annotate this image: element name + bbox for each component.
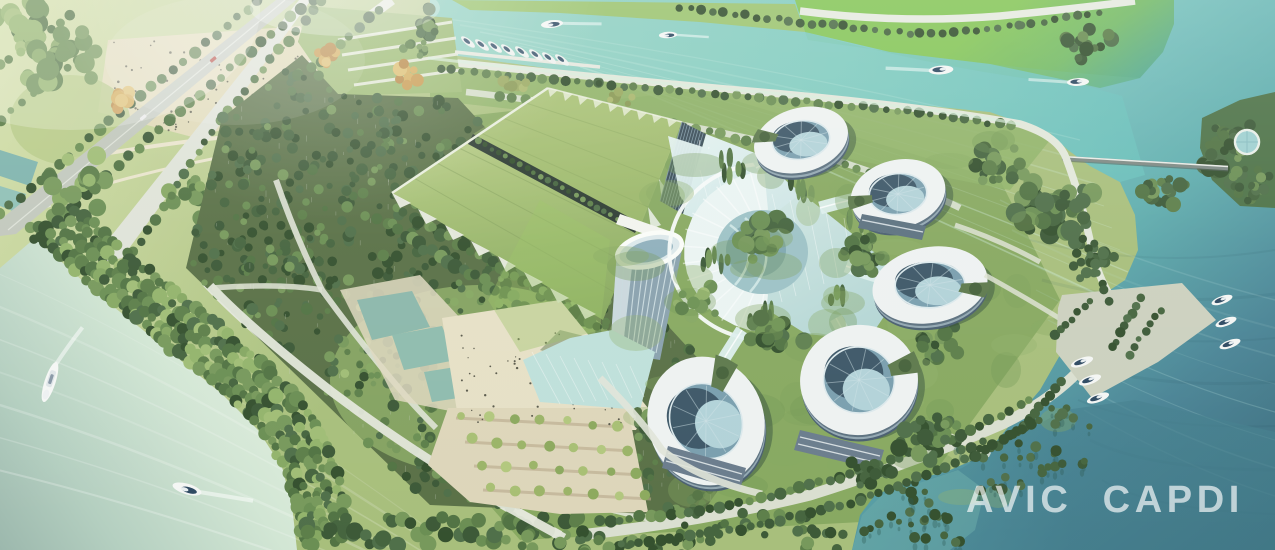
svg-text:AVIC CAPDI: AVIC CAPDI — [966, 479, 1244, 521]
